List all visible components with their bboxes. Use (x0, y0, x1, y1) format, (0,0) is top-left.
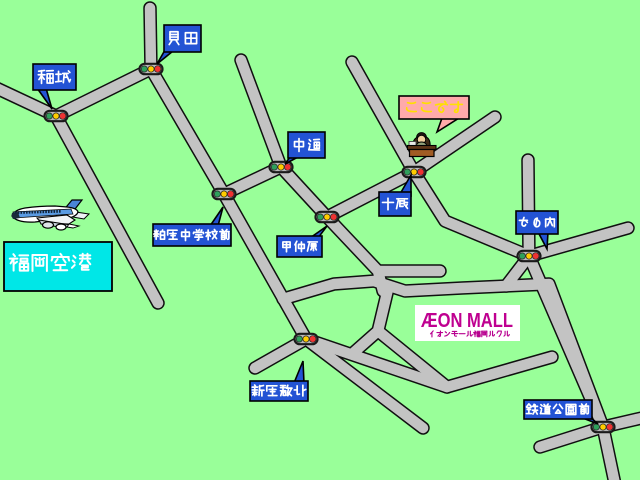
svg-text:ÆON MALL: ÆON MALL (421, 310, 513, 332)
